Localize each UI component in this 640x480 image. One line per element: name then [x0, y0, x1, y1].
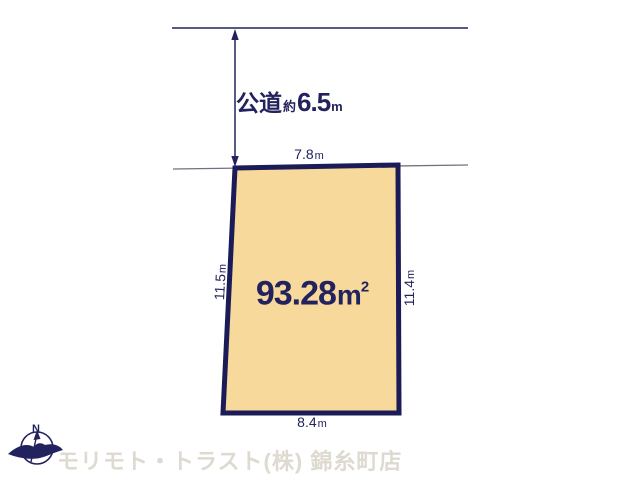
company-watermark: モリモト・トラスト(株) 錦糸町店: [57, 444, 402, 476]
dimension-bottom: 8.4 m: [297, 414, 327, 430]
plot-area-sup: 2: [361, 279, 368, 296]
diagram-canvas: [0, 0, 640, 480]
road-name: 公道: [236, 84, 282, 118]
dimension-left-unit: m: [216, 264, 228, 274]
road-width-unit: m: [331, 99, 343, 114]
dimension-bottom-value: 8.4: [297, 414, 316, 430]
arrowhead-down-icon: [231, 156, 238, 167]
dimension-top-unit: m: [315, 150, 324, 162]
dimension-right: 11.4 m: [401, 270, 417, 306]
dimension-right-value: 11.4: [401, 280, 417, 306]
dimension-left: 11.5 m: [211, 263, 229, 300]
compass: [8, 430, 63, 464]
plot-area-label: 93.28 m 2: [256, 275, 368, 314]
plot-area-unit: m: [337, 280, 361, 312]
dimension-right-unit: m: [405, 270, 417, 279]
land-plot-diagram: 公道 約 6.5 m 7.8 m 8.4 m 11.5 m 11.4 m 93.…: [0, 0, 640, 480]
compass-north-label: N: [32, 423, 40, 435]
plot-area-value: 93.28: [256, 275, 336, 314]
road-approx: 約: [283, 96, 296, 115]
dimension-left-value: 11.5: [211, 274, 228, 301]
road-width-value: 6.5: [297, 87, 330, 118]
road-width-label: 公道 約 6.5 m: [236, 84, 344, 118]
dimension-top-value: 7.8: [294, 146, 313, 162]
dimension-bottom-unit: m: [318, 418, 327, 430]
dimension-top: 7.8 m: [294, 146, 324, 162]
compass-bird-icon: [8, 443, 63, 459]
arrowhead-up-icon: [231, 29, 238, 40]
